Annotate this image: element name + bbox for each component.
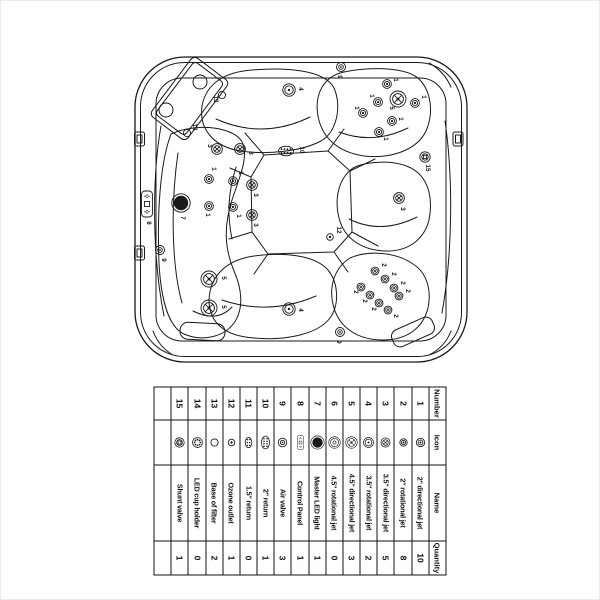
- part-icon-cell: [222, 420, 239, 465]
- table-row: 54.5" directional jet3: [342, 387, 359, 575]
- jet-2in-rotational-icon: [384, 306, 392, 314]
- jet-2in-rotational-icon: [381, 275, 389, 283]
- jet-3-5in-directional-icon: [381, 437, 390, 446]
- jet-2in-directional-icon: [383, 80, 392, 89]
- marker-number-label: 12: [335, 227, 342, 234]
- table-row: 22" rotational jet8: [394, 387, 411, 575]
- marker-number-label: 1: [204, 213, 211, 217]
- air-valve-icon: [156, 246, 165, 255]
- parts-table: NumberIconNameQuantity12" directional je…: [153, 386, 446, 575]
- marker-number-label: 13: [191, 124, 198, 131]
- part-quantity: 0: [239, 541, 256, 575]
- part-quantity: 3: [342, 541, 359, 575]
- marker-number-label: 1: [397, 117, 404, 121]
- part-icon-cell: [274, 420, 291, 465]
- part-name: Base of filter: [205, 465, 222, 541]
- part-icon-cell: [171, 420, 188, 465]
- empty-cell: [154, 465, 171, 541]
- marker-number-label: 2: [399, 281, 406, 285]
- part-icon-cell: [291, 420, 308, 465]
- part-number: 14: [188, 387, 205, 420]
- part-quantity: 1: [222, 541, 239, 575]
- marker-number-label: 1: [368, 94, 375, 98]
- jet-2in-rotational-icon: [399, 438, 406, 445]
- return-1-5in-icon: [245, 437, 252, 447]
- jet-2in-rotational-icon: [366, 291, 374, 299]
- jet-2in-directional-icon: [388, 117, 397, 126]
- control-panel-icon: [142, 191, 153, 217]
- part-number: 15: [171, 387, 188, 420]
- part-name: 2" return: [257, 465, 274, 541]
- marker-number-label: 4: [297, 87, 304, 91]
- markers-layer: 1111111111222222223333344555789991012131…: [142, 63, 432, 345]
- jet-2in-rotational-icon: [395, 292, 403, 300]
- marker-number-label: 1: [420, 95, 427, 99]
- jet-2in-directional-icon: [411, 99, 420, 108]
- jet-3-5in-rotational-icon: [283, 84, 295, 96]
- part-icon-cell: [205, 420, 222, 465]
- table-row: 13Base of filter2: [205, 387, 222, 575]
- part-number: 3: [377, 387, 394, 420]
- marker-number-label: 9: [160, 258, 167, 262]
- marker-number-label: 3: [206, 144, 213, 148]
- return-2in-icon: [261, 436, 269, 449]
- part-icon-cell: [342, 420, 359, 465]
- marker-number-label: 2: [392, 314, 399, 318]
- shunt-valve-icon: [175, 437, 184, 446]
- marker-number-label: 2: [390, 272, 397, 276]
- part-quantity: 1: [308, 541, 325, 575]
- jet-3-5in-rotational-icon: [283, 303, 295, 315]
- marker-number-label: 2: [370, 307, 377, 311]
- part-name: 2" directional jet: [411, 465, 428, 541]
- part-number: 11: [239, 387, 256, 420]
- part-quantity: 8: [394, 541, 411, 575]
- marker-number-label: 3: [247, 151, 254, 155]
- part-icon-cell: [325, 420, 342, 465]
- jet-4-5in-directional-icon: [201, 300, 217, 316]
- jet-2in-directional-icon: [205, 202, 214, 211]
- jet-2in-directional-icon: [375, 128, 384, 137]
- jet-4-5in-rotational-icon: [328, 436, 340, 448]
- part-name: 4.5" directional jet: [342, 465, 359, 541]
- part-quantity: 1: [257, 541, 274, 575]
- column-header-quantity: Quantity: [428, 541, 445, 575]
- marker-number-label: 3: [399, 207, 406, 211]
- marker-number-label: 3: [252, 223, 259, 227]
- table-row: 12Ozone outlet1: [222, 387, 239, 575]
- table-row: 15Shunt valve1: [171, 387, 188, 575]
- marker-number-label: 7: [179, 216, 186, 220]
- part-quantity: 0: [188, 541, 205, 575]
- jet-4-5in-directional-icon: [390, 91, 406, 107]
- empty-cell: [154, 541, 171, 575]
- marker-number-label: 2: [361, 299, 368, 303]
- marker-number-label: 5: [220, 276, 227, 280]
- shunt-valve-icon: [420, 152, 430, 162]
- master-led-light-icon: [172, 194, 190, 212]
- bottom-seat: [209, 254, 337, 338]
- marker-number-label: 1: [392, 78, 399, 82]
- part-quantity: 1: [291, 541, 308, 575]
- base-of-filter-icon: [210, 438, 217, 445]
- marker-number-label: 3: [252, 193, 259, 197]
- column-header-icon: Icon: [428, 420, 445, 465]
- part-number: 10: [257, 387, 274, 420]
- jet-2in-directional-icon: [359, 109, 368, 118]
- part-icon-cell: [239, 420, 256, 465]
- marker-number-label: 10: [298, 147, 305, 154]
- part-number: 2: [394, 387, 411, 420]
- hot-tub-diagram: 1111111111222222223333344555789991012131…: [131, 53, 473, 367]
- table-row: 7Master LED light1: [308, 387, 325, 575]
- part-name: Shunt valve: [171, 465, 188, 541]
- part-number: 4: [360, 387, 377, 420]
- jet-4-5in-directional-icon: [345, 436, 357, 448]
- marker-number-label: 15: [424, 165, 431, 172]
- table-row: 12" directional jet10: [411, 387, 428, 575]
- table-row: 102" return1: [257, 387, 274, 575]
- part-name: Control Panel: [291, 465, 308, 541]
- table-row: 33.5" directional jet5: [377, 387, 394, 575]
- part-quantity: 2: [205, 541, 222, 575]
- marker-number-label: 8: [145, 221, 152, 225]
- air-valve-icon: [278, 438, 287, 447]
- empty-row: [154, 387, 171, 575]
- product-sheet: 1111111111222222223333344555789991012131…: [0, 0, 600, 600]
- part-name: 2" rotational jet: [394, 465, 411, 541]
- table-row: 64.5" rotational jet0: [325, 387, 342, 575]
- part-quantity: 10: [411, 541, 428, 575]
- part-number: 8: [291, 387, 308, 420]
- led-cup-holder-icon: [192, 437, 202, 447]
- jet-2in-directional-icon: [205, 175, 214, 184]
- part-quantity: 1: [171, 541, 188, 575]
- jet-3-5in-rotational-icon: [363, 437, 373, 447]
- part-quantity: 0: [325, 541, 342, 575]
- part-name: Ozone outlet: [222, 465, 239, 541]
- air-valve-icon: [336, 328, 345, 337]
- part-name: Air valve: [274, 465, 291, 541]
- part-number: 9: [274, 387, 291, 420]
- part-icon-cell: [188, 420, 205, 465]
- jet-4-5in-directional-icon: [201, 271, 217, 287]
- marker-number-label: 1: [237, 171, 244, 175]
- part-number: 12: [222, 387, 239, 420]
- ozone-outlet-icon: [228, 439, 235, 446]
- part-icon-cell: [411, 420, 428, 465]
- table-row: 9Air valve3: [274, 387, 291, 575]
- part-icon-cell: [308, 420, 325, 465]
- part-number: 6: [325, 387, 342, 420]
- part-quantity: 2: [360, 541, 377, 575]
- control-panel-icon: [297, 435, 303, 449]
- part-icon-cell: [377, 420, 394, 465]
- marker-number-label: 9: [335, 340, 342, 344]
- column-header-name: Name: [428, 465, 445, 541]
- part-number: 7: [308, 387, 325, 420]
- rim-clamp: [135, 132, 145, 146]
- part-number: 13: [205, 387, 222, 420]
- marker-number-label: 5: [220, 305, 227, 309]
- master-led-light-icon: [310, 435, 323, 448]
- part-quantity: 3: [274, 541, 291, 575]
- empty-cell: [154, 387, 171, 420]
- empty-cell: [154, 420, 171, 465]
- air-valve-icon: [337, 63, 346, 72]
- jet-3-5in-directional-icon: [247, 180, 258, 191]
- shell-outline-inner: [141, 63, 462, 357]
- step-pad-right: [389, 315, 437, 349]
- marker-number-label: 4: [297, 308, 304, 312]
- marker-number-label: 9: [336, 75, 343, 79]
- part-icon-cell: [394, 420, 411, 465]
- part-name: 3.5" directional jet: [377, 465, 394, 541]
- part-icon-cell: [257, 420, 274, 465]
- marker-number-label: 2: [404, 289, 411, 293]
- jet-2in-rotational-icon: [375, 299, 383, 307]
- jet-3-5in-directional-icon: [394, 193, 405, 204]
- marker-number-label: 1: [353, 106, 360, 110]
- part-name: LED cup holder: [188, 465, 205, 541]
- marker-number-label: 5: [388, 106, 395, 110]
- ozone-outlet-icon: [327, 234, 334, 241]
- part-icon-cell: [360, 420, 377, 465]
- part-quantity: 5: [377, 541, 394, 575]
- marker-number-label: 1: [382, 137, 389, 141]
- jet-2in-rotational-icon: [390, 284, 398, 292]
- rim-clamp: [135, 246, 145, 260]
- table-row: 111.5" return0: [239, 387, 256, 575]
- part-number: 5: [342, 387, 359, 420]
- parts-table-area: NumberIconNameQuantity12" directional je…: [153, 386, 446, 574]
- table-row: 14LED cup holder0: [188, 387, 205, 575]
- part-name: 4.5" rotational jet: [325, 465, 342, 541]
- part-name: Master LED light: [308, 465, 325, 541]
- marker-number-label: 2: [380, 263, 387, 267]
- part-number: 1: [411, 387, 428, 420]
- part-name: 3.5" rotational jet: [360, 465, 377, 541]
- marker-number-label: 1: [235, 214, 242, 218]
- jet-2in-directional-icon: [416, 438, 424, 446]
- jet-2in-rotational-icon: [371, 267, 379, 275]
- marker-number-label: 1: [210, 167, 217, 171]
- marker-number-label: 2: [352, 290, 359, 294]
- part-name: 1.5" return: [239, 465, 256, 541]
- marker-number-label: 13: [212, 96, 219, 103]
- table-row: 8Control Panel1: [291, 387, 308, 575]
- jet-2in-directional-icon: [374, 98, 383, 107]
- table-header-row: NumberIconNameQuantity: [428, 387, 445, 575]
- table-row: 43.5" rotational jet2: [360, 387, 377, 575]
- column-header-number: Number: [428, 387, 445, 420]
